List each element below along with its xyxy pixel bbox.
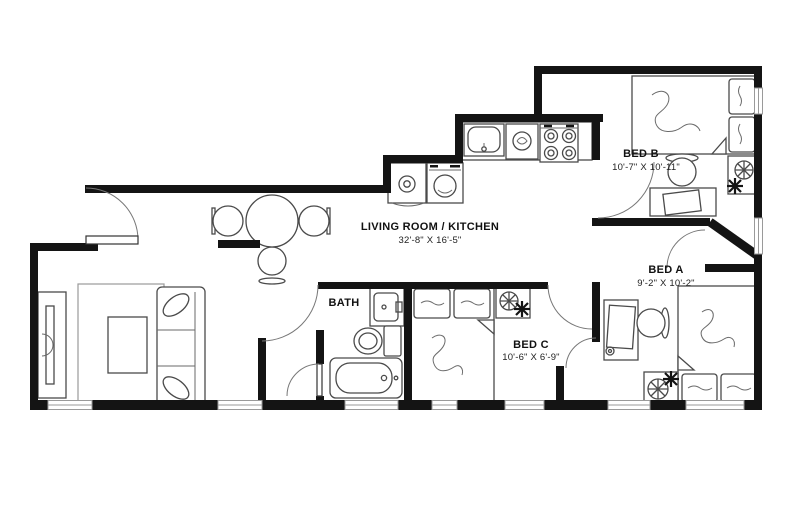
sofa: [157, 287, 205, 405]
room-label-bed-a: BED A: [648, 264, 683, 276]
pillow: [454, 289, 490, 318]
window: [48, 401, 92, 410]
bed: [410, 286, 494, 404]
wall-segment: [744, 400, 762, 410]
wall-segment: [30, 243, 38, 410]
desk: [604, 300, 638, 360]
desk: [650, 188, 716, 216]
wall-segment: [85, 185, 390, 193]
toilet-icon: [354, 326, 401, 356]
window: [755, 88, 763, 114]
pillow: [414, 289, 450, 318]
dining-chair: [299, 206, 329, 236]
chair-base: [259, 278, 285, 284]
floor-plan-drawing: LIVING ROOM / KITCHEN 32'-8" X 16'-5" BE…: [0, 0, 800, 518]
room-label-bath: BATH: [329, 297, 360, 309]
room-label-bed-c: BED C: [513, 339, 549, 351]
dining-table: [246, 195, 298, 247]
wall-segment: [30, 400, 48, 410]
living-room-furniture: [38, 284, 205, 406]
wall-segment: [592, 114, 600, 160]
nightstand: [727, 156, 758, 194]
vanity-sink-icon: [370, 288, 404, 326]
ceiling-fan-icon: [648, 379, 668, 399]
plant-icon: [663, 371, 679, 387]
wall-segment: [457, 400, 505, 410]
room-dim-living-kitchen: 32'-8" X 16'-5": [398, 235, 461, 246]
window: [608, 401, 650, 410]
bed: [632, 76, 758, 154]
wall-segment: [318, 282, 548, 289]
wall-segment: [455, 114, 603, 122]
wall-segment: [592, 218, 710, 226]
door-leaf: [86, 236, 138, 244]
desk-chair: [637, 308, 669, 338]
dryer-icon: [427, 163, 463, 203]
wall-segment: [534, 66, 542, 122]
room-dim-bed-c: 10'-6" X 6'-9": [502, 352, 560, 363]
wall-segment: [92, 400, 218, 410]
bed-c-furniture: [410, 286, 530, 404]
bath-door-arc: [262, 285, 318, 341]
room-label-bed-b: BED B: [623, 148, 659, 160]
wall-segment: [398, 400, 432, 410]
stove-icon: [540, 124, 578, 162]
room-dim-bed-b: 10'-7" X 10'-11": [612, 162, 680, 173]
bed-a-door-arc: [667, 230, 705, 268]
window: [432, 401, 457, 410]
floor-plan: LIVING ROOM / KITCHEN 32'-8" X 16'-5" BE…: [0, 0, 800, 518]
wall-segment: [218, 240, 260, 248]
dining-chair: [258, 247, 286, 275]
ceiling-fan-icon: [735, 161, 753, 179]
dining-chair: [213, 206, 243, 236]
wall-segment: [544, 400, 608, 410]
window: [505, 401, 544, 410]
window: [218, 401, 262, 410]
window: [345, 401, 398, 410]
wall-segment: [262, 400, 345, 410]
coffee-table: [108, 317, 147, 373]
bed-a-furniture: [604, 286, 758, 404]
bathtub-icon: [330, 358, 402, 398]
wall-segment: [316, 330, 324, 364]
window: [755, 218, 763, 254]
room-label-living-kitchen: LIVING ROOM / KITCHEN: [361, 221, 499, 233]
wall-segment: [754, 254, 762, 410]
wall-segment: [754, 114, 762, 218]
door-leaf: [317, 364, 322, 396]
nightstand: [644, 371, 679, 402]
wall-segment: [650, 400, 686, 410]
bed-a-closet-door-arc: [566, 338, 596, 368]
kitchen-appliances: [388, 122, 592, 206]
plant-icon: [727, 178, 743, 194]
pillow: [729, 117, 755, 152]
washer-icon: [388, 163, 426, 206]
plant-icon: [514, 301, 530, 317]
pillow: [729, 79, 755, 114]
wall-segment: [404, 282, 412, 410]
wall-segment: [534, 66, 762, 74]
nightstand: [496, 288, 530, 318]
bed: [678, 286, 758, 404]
wall-segment: [754, 66, 762, 88]
bed-c-door-arc: [548, 285, 592, 329]
dining-set: [212, 195, 330, 284]
entry-door: [86, 188, 138, 244]
closet-door: [287, 364, 322, 396]
tv-console: [38, 292, 66, 398]
dishwasher-icon: [506, 124, 538, 159]
kitchen-sink-icon: [464, 124, 504, 156]
ceiling-fan-icon: [500, 292, 518, 310]
wall-segment: [592, 282, 600, 342]
room-dim-bed-a: 9'-2" X 10'-2": [637, 278, 695, 289]
wall-segment: [383, 155, 463, 163]
window: [686, 401, 744, 410]
wall-segment: [705, 264, 754, 272]
diagonal-wall: [710, 222, 758, 256]
bed-b-furniture: [632, 76, 758, 216]
wall-segment: [258, 338, 266, 410]
